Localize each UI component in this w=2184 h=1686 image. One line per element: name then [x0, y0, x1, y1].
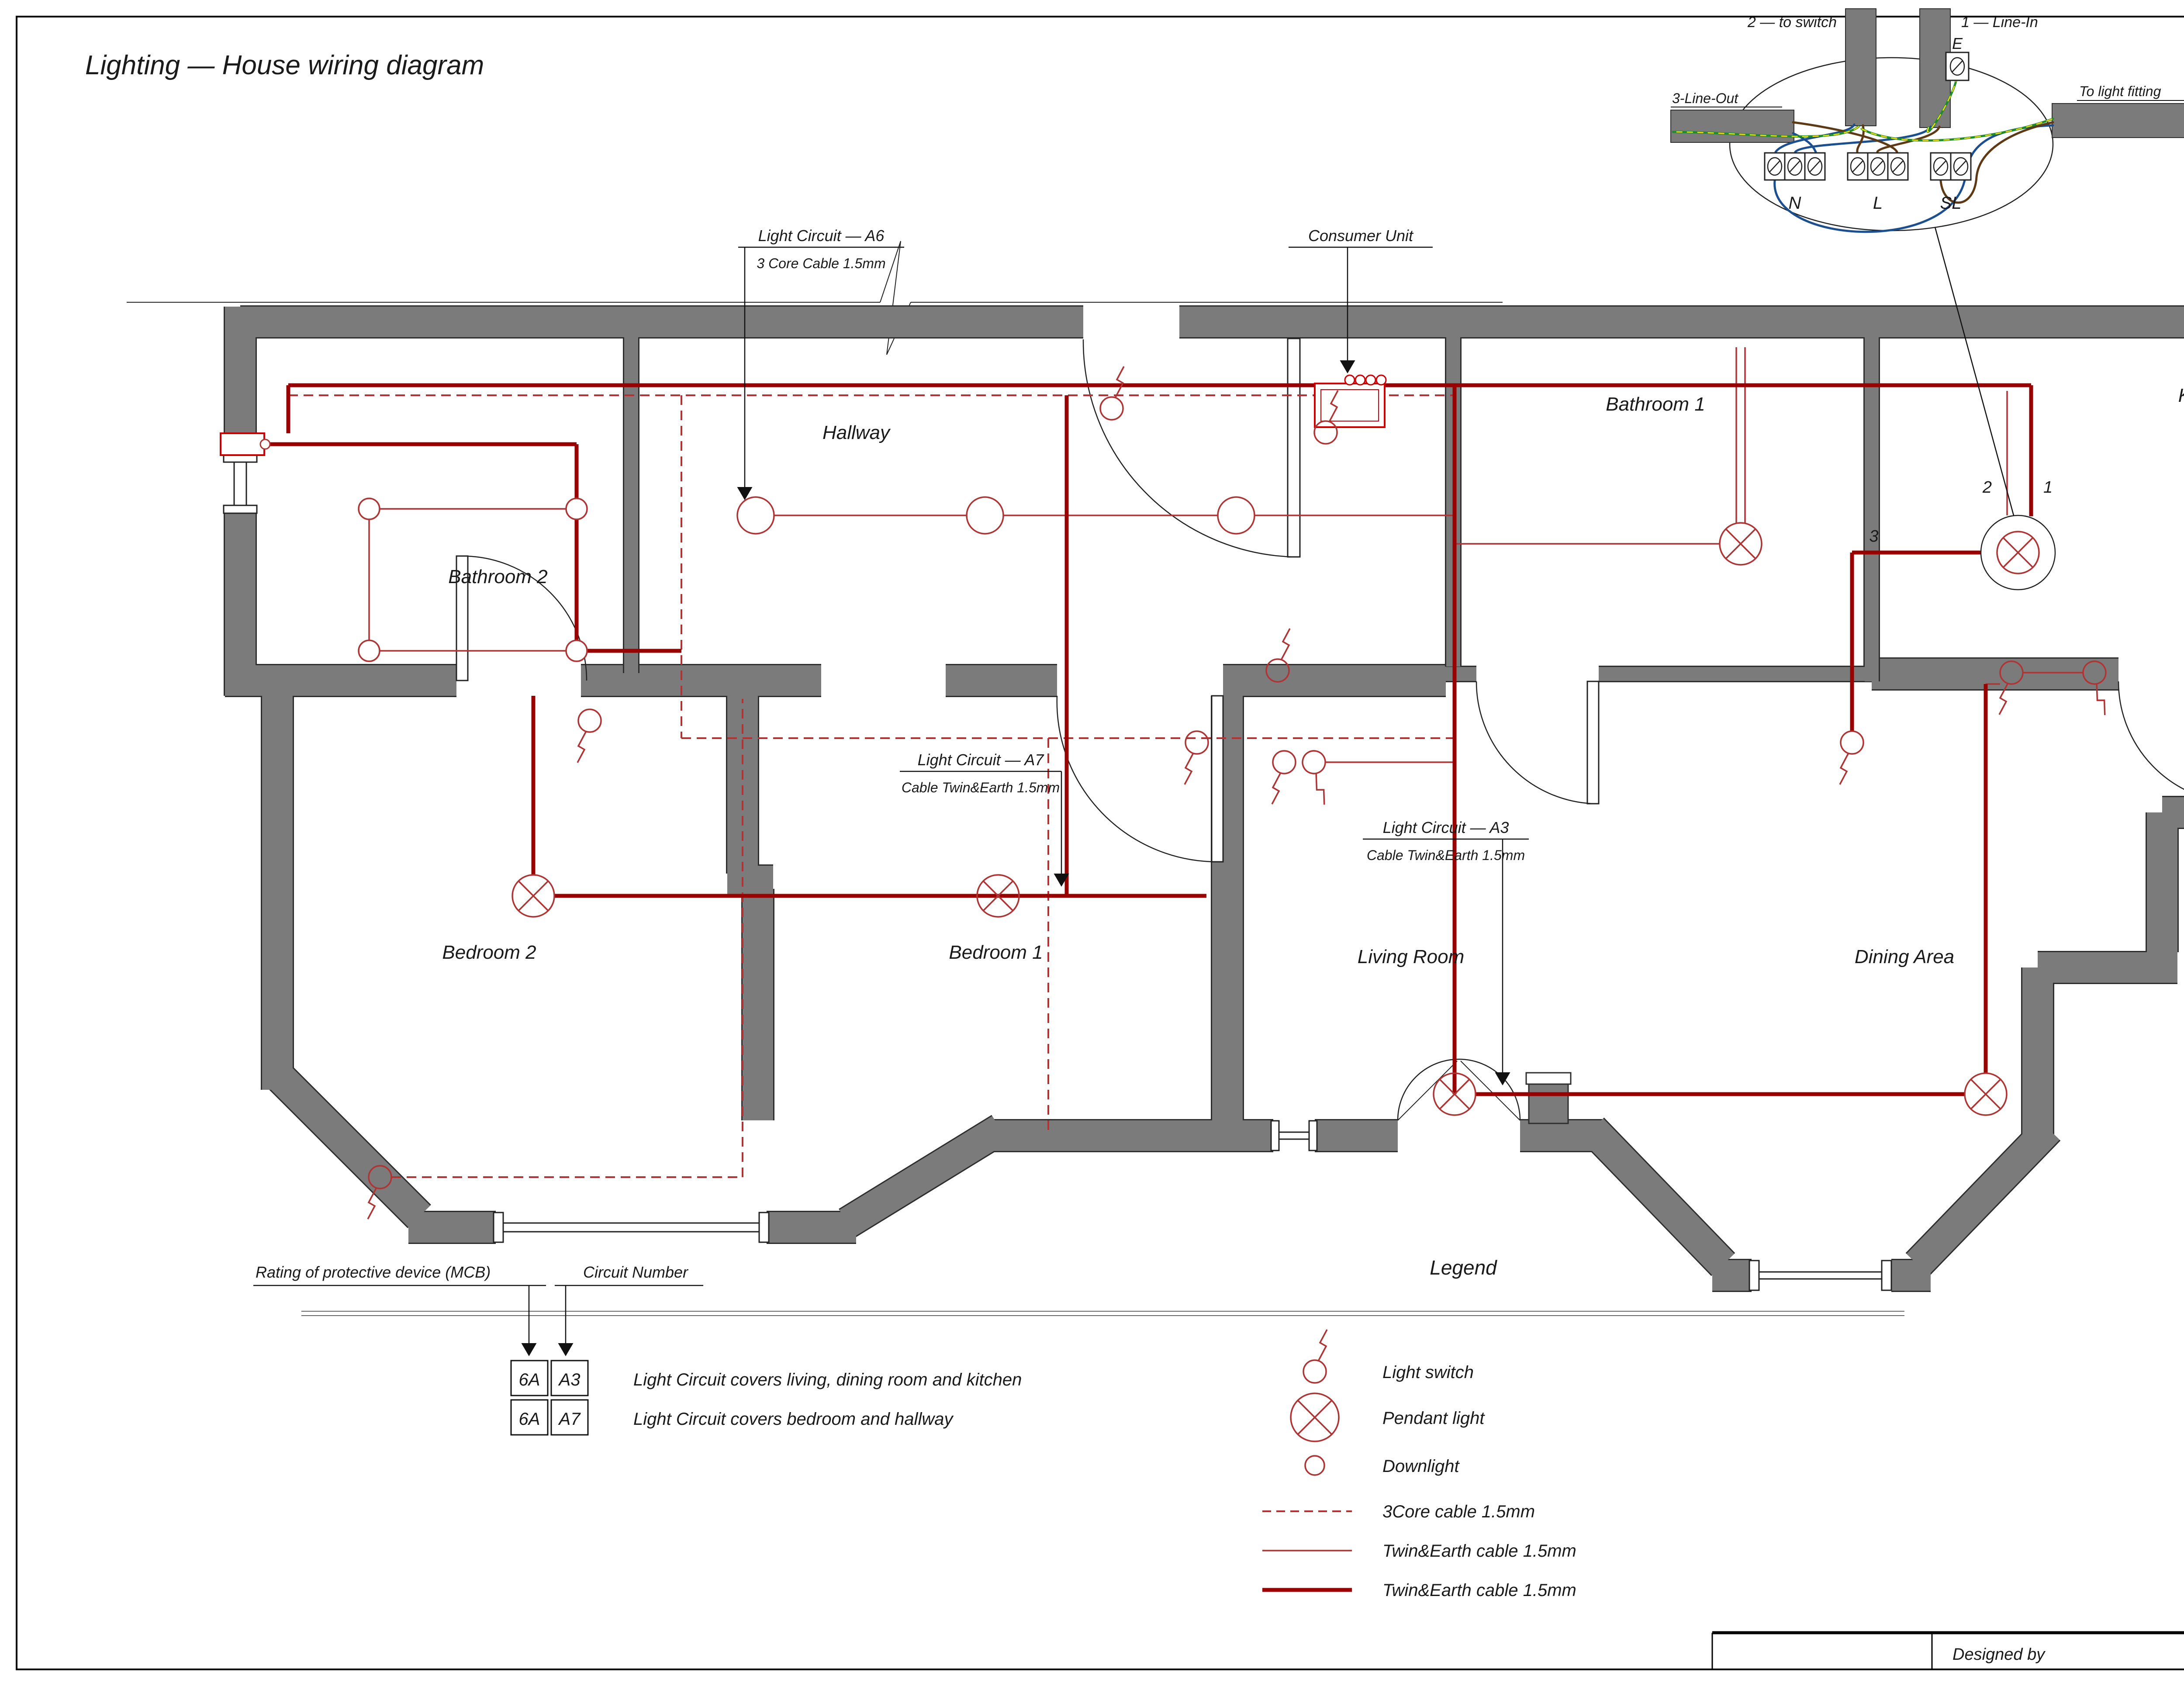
- room-label-dining: Dining Area: [1855, 946, 1954, 967]
- mcb-row1-description: Light Circuit covers living, dining room…: [633, 1370, 1022, 1389]
- window-living-room: [1271, 1121, 1317, 1150]
- wiring-diagram-page: 2 — to switch 1 — Line-In 3-Line-Out To …: [0, 0, 2184, 1686]
- label-earth: E: [1952, 35, 1963, 52]
- switch-bedroom1: [1185, 731, 1208, 784]
- designed-by-label: Designed by: [1952, 1645, 2046, 1664]
- legend-item-switch: Light switch: [1382, 1363, 1474, 1382]
- room-label-hallway: Hallway: [822, 422, 891, 443]
- circuit-a6-cable: 3 Core Cable 1.5mm: [757, 256, 885, 271]
- downlight-bathroom2-3: [359, 640, 380, 661]
- mcb-rating-heading: Rating of protective device (MCB): [256, 1263, 491, 1281]
- legend-item-pendant: Pendant light: [1382, 1409, 1485, 1428]
- circuit-a3-name: Light Circuit — A3: [1383, 819, 1509, 836]
- circuit-a7-cable: Cable Twin&Earth 1.5mm: [902, 780, 1060, 795]
- walls: [225, 307, 2184, 1275]
- cable-to-light-fitting: [2052, 104, 2184, 138]
- label-to-light-fitting: To light fitting: [2079, 83, 2161, 99]
- room-label-bedroom2: Bedroom 2: [442, 942, 536, 963]
- label-line-out: 3-Line-Out: [1672, 90, 1738, 106]
- cable-3core-dashed-runs: [288, 395, 1455, 1177]
- legend-item-twin-thick: Twin&Earth cable 1.5mm: [1382, 1581, 1576, 1600]
- mcb-row2-rating: 6A: [519, 1410, 540, 1429]
- terrace-line: [301, 1311, 1904, 1316]
- switch-living-2: [1298, 746, 1345, 805]
- consumer-unit-symbol: [1315, 375, 1386, 427]
- diagram-canvas: 2 — to switch 1 — Line-In 3-Line-Out To …: [0, 0, 2184, 1686]
- switch-entrance: [1100, 366, 1124, 420]
- chimney: [1529, 1083, 1568, 1123]
- door-entrance: [1083, 339, 1300, 557]
- cable-to-switch: [1845, 9, 1876, 126]
- switch-bathroom2-door: [577, 709, 601, 763]
- window-bedroom2-bay: [494, 1213, 769, 1242]
- page-border: [17, 17, 2184, 1669]
- doors: [456, 339, 2184, 1120]
- window-dining-bay: [1749, 1261, 1891, 1290]
- pendant-dining: [1965, 1073, 2007, 1115]
- downlight-hallway-3: [1218, 497, 1254, 534]
- circuit-a7-name: Light Circuit — A7: [918, 751, 1045, 769]
- label-neutral: N: [1789, 193, 1801, 213]
- mcb-row2-circuit: A7: [558, 1410, 581, 1429]
- circuit-a6-name: Light Circuit — A6: [758, 227, 885, 245]
- label-line-in: 1 — Line-In: [1961, 14, 2038, 31]
- door-bathroom1: [1476, 681, 1599, 804]
- legend-item-3core: 3Core cable 1.5mm: [1382, 1502, 1535, 1521]
- circuit-a3-cable: Cable Twin&Earth 1.5mm: [1367, 847, 1525, 863]
- switch-kitchen-3way: [1840, 731, 1863, 784]
- room-label-bedroom1: Bedroom 1: [949, 942, 1043, 963]
- pendant-bathroom1: [1720, 523, 1762, 565]
- downlight-bathroom2-1: [359, 498, 380, 519]
- cable-line-out: [1671, 110, 1794, 142]
- mcb-row2-description: Light Circuit covers bedroom and hallway: [633, 1410, 954, 1429]
- downlight-hallway-1: [737, 497, 774, 534]
- page-title: Lighting — House wiring diagram: [85, 50, 484, 80]
- pendant-bedroom2: [512, 875, 554, 917]
- window-left-wall: [222, 454, 259, 513]
- legend-item-downlight: Downlight: [1382, 1457, 1460, 1476]
- downlight-bathroom2-4: [566, 640, 587, 661]
- consumer-unit-label: Consumer Unit: [1308, 227, 1414, 245]
- downlight-hallway-2: [967, 497, 1003, 534]
- label-live: L: [1873, 193, 1883, 213]
- room-label-living: Living Room: [1358, 946, 1465, 967]
- door-bedroom1: [1057, 696, 1223, 862]
- fan-box: [221, 433, 270, 455]
- legend: Legend Light switch Pendant light Downli…: [1262, 1256, 1576, 1600]
- mcb-table: Rating of protective device (MCB) Circui…: [253, 1263, 1022, 1435]
- room-label-bathroom1: Bathroom 1: [1606, 394, 1705, 415]
- cable-twin-earth-thick-runs: [264, 385, 2031, 1094]
- legend-title: Legend: [1430, 1256, 1497, 1279]
- downlight-icon: [1305, 1456, 1324, 1475]
- room-label-kitchen: Kitchen: [2178, 385, 2184, 406]
- downlight-bathroom2-2: [566, 498, 587, 519]
- label-switched-live: SL: [1940, 193, 1962, 213]
- kitchen-wire-1: 1: [2043, 478, 2053, 497]
- kitchen-wire-3: 3: [1869, 527, 1878, 546]
- room-label-bathroom2: Bathroom 2: [448, 566, 547, 587]
- legend-item-twin-thin: Twin&Earth cable 1.5mm: [1382, 1541, 1576, 1561]
- pendant-kitchen-junction: [1981, 515, 2055, 590]
- mcb-circuit-heading: Circuit Number: [583, 1263, 689, 1281]
- door-kitchen: [2118, 681, 2184, 803]
- label-to-switch: 2 — to switch: [1747, 14, 1837, 31]
- light-switch-icon: [1303, 1330, 1327, 1383]
- mcb-row1-rating: 6A: [519, 1370, 540, 1389]
- pendant-light-icon: [1291, 1393, 1339, 1441]
- junction-box-detail: 2 — to switch 1 — Line-In 3-Line-Out To …: [1671, 9, 2184, 232]
- kitchen-wire-2: 2: [1982, 478, 1992, 497]
- title-block: Designed by: [1712, 1633, 2184, 1669]
- switch-living-1: [1272, 751, 1296, 804]
- mcb-row1-circuit: A3: [558, 1370, 581, 1389]
